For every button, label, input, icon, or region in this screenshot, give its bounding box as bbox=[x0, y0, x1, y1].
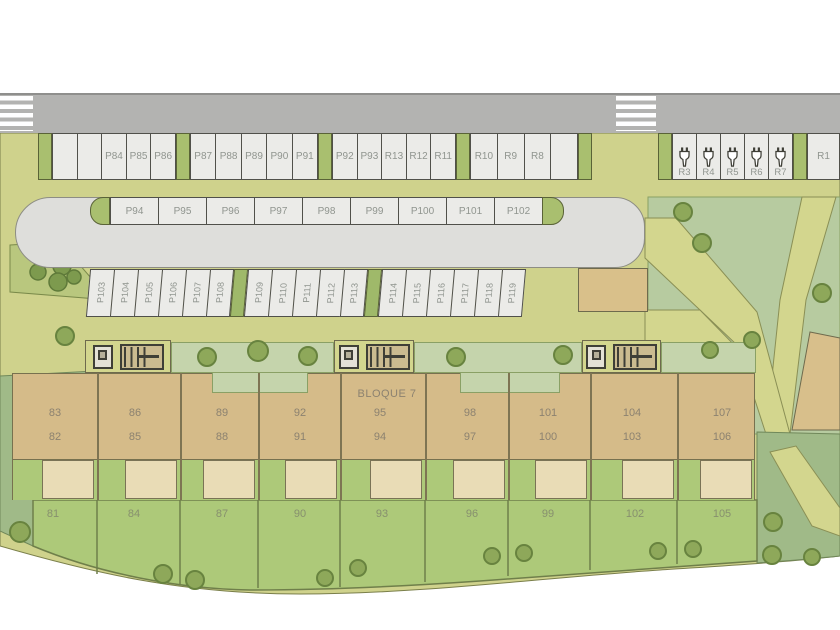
parking-stall bbox=[551, 134, 578, 179]
planting-cap bbox=[456, 133, 470, 180]
parking-stall bbox=[78, 134, 103, 179]
unit-divider bbox=[508, 373, 510, 500]
unit-number: 92 bbox=[294, 407, 306, 419]
parking-group: P84 P85 P86 bbox=[52, 133, 176, 180]
parking-group: P87 P88 P89 P90 P91 bbox=[190, 133, 318, 180]
parking-group: R10 R9 R8 bbox=[470, 133, 578, 180]
unit-number: 97 bbox=[464, 431, 476, 443]
unit-number: 86 bbox=[129, 407, 141, 419]
parking-stall: P102 bbox=[494, 197, 542, 225]
parking-stall: P86 bbox=[151, 134, 176, 179]
planting-cap bbox=[38, 133, 52, 180]
unit-number: 94 bbox=[374, 431, 386, 443]
tree-icon bbox=[812, 283, 832, 303]
stairs-icon bbox=[366, 344, 410, 370]
garden-number: 96 bbox=[466, 508, 478, 520]
patio bbox=[285, 460, 337, 499]
parking-stall: P92 bbox=[333, 134, 358, 179]
unit-number: 107 bbox=[713, 407, 731, 419]
patio bbox=[622, 460, 674, 499]
tree-icon bbox=[153, 564, 173, 584]
parking-stall: P98 bbox=[302, 197, 350, 225]
ev-parking-group: R3 R4 R5 R6 R7 bbox=[672, 133, 793, 180]
ev-plug-icon bbox=[702, 147, 715, 167]
unit-divider bbox=[425, 373, 427, 500]
tree-icon bbox=[673, 202, 693, 222]
road bbox=[0, 93, 840, 133]
tree-icon bbox=[649, 542, 667, 560]
unit-number: 82 bbox=[49, 431, 61, 443]
tree-icon bbox=[483, 547, 501, 565]
parking-stall: P87 bbox=[191, 134, 216, 179]
garden-number: 90 bbox=[294, 508, 306, 520]
ev-parking-stall: R7 bbox=[769, 134, 793, 179]
parking-stall: R1 bbox=[808, 134, 840, 179]
parking-stall: P85 bbox=[127, 134, 152, 179]
tree-icon bbox=[298, 346, 318, 366]
unit-number: 91 bbox=[294, 431, 306, 443]
tree-icon bbox=[553, 345, 573, 365]
crosswalk-icon bbox=[616, 96, 656, 131]
parking-stall: P119 bbox=[498, 269, 526, 317]
parking-stall: P91 bbox=[293, 134, 318, 179]
parking-stall: P90 bbox=[267, 134, 292, 179]
parking-lower-row: P103 P104 P105 P106 P107 P108 P109 P110 … bbox=[86, 269, 526, 317]
planting-cap bbox=[542, 197, 564, 225]
patio bbox=[125, 460, 177, 499]
parking-stall: P94 bbox=[110, 197, 158, 225]
planting-cap bbox=[658, 133, 672, 180]
tree-icon bbox=[701, 341, 719, 359]
patio bbox=[42, 460, 94, 499]
patio bbox=[453, 460, 505, 499]
tree-icon bbox=[684, 540, 702, 558]
stairs-icon bbox=[613, 344, 657, 370]
elevator-icon bbox=[339, 345, 359, 369]
elevator-icon bbox=[586, 345, 606, 369]
patio bbox=[700, 460, 752, 499]
planting-cap bbox=[90, 197, 110, 225]
parking-stall: P89 bbox=[242, 134, 267, 179]
garden-number: 99 bbox=[542, 508, 554, 520]
tree-icon bbox=[316, 569, 334, 587]
tree-icon bbox=[743, 331, 761, 349]
parking-stall: R12 bbox=[407, 134, 432, 179]
gardens bbox=[33, 500, 757, 590]
site-plan: P84 P85 P86 P87 P88 P89 P90 P91 P92 P93 … bbox=[0, 0, 840, 630]
tree-icon bbox=[692, 233, 712, 253]
stair-core bbox=[582, 340, 661, 373]
unit-number: 104 bbox=[623, 407, 641, 419]
garden-number: 81 bbox=[47, 508, 59, 520]
parking-stall: P88 bbox=[216, 134, 241, 179]
elevator-icon bbox=[93, 345, 113, 369]
ev-parking-stall: R4 bbox=[697, 134, 721, 179]
building-setback bbox=[212, 373, 308, 393]
unit-number: 103 bbox=[623, 431, 641, 443]
stairs-icon bbox=[120, 344, 164, 370]
unit-number: 88 bbox=[216, 431, 228, 443]
stall-label: R6 bbox=[750, 168, 762, 178]
parking-island-row: P94 P95 P96 P97 P98 P99 P100 P101 P102 bbox=[90, 197, 564, 225]
garden-number: 105 bbox=[713, 508, 731, 520]
parking-stall: P99 bbox=[350, 197, 398, 225]
garden-number: 87 bbox=[216, 508, 228, 520]
unit-number: 83 bbox=[49, 407, 61, 419]
ev-plug-icon bbox=[726, 147, 739, 167]
unit-number: 100 bbox=[539, 431, 557, 443]
parking-group: R1 bbox=[807, 133, 840, 180]
unit-number: 89 bbox=[216, 407, 228, 419]
stall-label: R7 bbox=[774, 168, 786, 178]
unit-divider bbox=[97, 373, 99, 500]
block-label: BLOQUE 7 bbox=[357, 388, 416, 400]
ev-parking-stall: R3 bbox=[673, 134, 697, 179]
parking-group: P92 P93 R13 R12 R11 bbox=[332, 133, 456, 180]
stall-label: R3 bbox=[678, 168, 690, 178]
parking-stall: P97 bbox=[254, 197, 302, 225]
tree-icon bbox=[349, 559, 367, 577]
garden-number: 102 bbox=[626, 508, 644, 520]
parking-stall: R9 bbox=[498, 134, 525, 179]
parking-stall: P101 bbox=[446, 197, 494, 225]
stall-label: R4 bbox=[702, 168, 714, 178]
unit-divider bbox=[258, 373, 260, 500]
parking-stall: P96 bbox=[206, 197, 254, 225]
unit-number: 106 bbox=[713, 431, 731, 443]
unit-number: 101 bbox=[539, 407, 557, 419]
unit-divider bbox=[180, 373, 182, 500]
planting-cap bbox=[793, 133, 807, 180]
unit-divider bbox=[340, 373, 342, 500]
planting-cap bbox=[578, 133, 592, 180]
tree-icon bbox=[763, 512, 783, 532]
utility-building bbox=[578, 268, 648, 312]
stair-core bbox=[85, 340, 171, 373]
tree-icon bbox=[247, 340, 269, 362]
parking-stall: P84 bbox=[102, 134, 127, 179]
parking-stall: R11 bbox=[431, 134, 456, 179]
ev-plug-icon bbox=[774, 147, 787, 167]
ev-parking-stall: R5 bbox=[721, 134, 745, 179]
parking-stall bbox=[53, 134, 78, 179]
patio bbox=[535, 460, 587, 499]
unit-number: 98 bbox=[464, 407, 476, 419]
ev-plug-icon bbox=[750, 147, 763, 167]
unit-number: 95 bbox=[374, 407, 386, 419]
parking-stall: R10 bbox=[471, 134, 498, 179]
parking-stall: P95 bbox=[158, 197, 206, 225]
ev-plug-icon bbox=[678, 147, 691, 167]
tree-icon bbox=[55, 326, 75, 346]
tree-icon bbox=[185, 570, 205, 590]
tree-icon bbox=[446, 347, 466, 367]
parking-stall: R13 bbox=[382, 134, 407, 179]
unit-divider bbox=[677, 373, 679, 500]
garden-number: 93 bbox=[376, 508, 388, 520]
planting-cap bbox=[318, 133, 332, 180]
parking-stall: P100 bbox=[398, 197, 446, 225]
patio bbox=[370, 460, 422, 499]
tree-icon bbox=[9, 521, 31, 543]
unit-divider bbox=[590, 373, 592, 500]
tree-icon bbox=[803, 548, 821, 566]
ev-parking-stall: R6 bbox=[745, 134, 769, 179]
garden-number: 84 bbox=[128, 508, 140, 520]
planting-cap bbox=[176, 133, 190, 180]
unit-number: 85 bbox=[129, 431, 141, 443]
stair-core bbox=[334, 340, 414, 373]
tree-icon bbox=[515, 544, 533, 562]
patio bbox=[203, 460, 255, 499]
parking-stall: R8 bbox=[525, 134, 552, 179]
stall-label: R5 bbox=[726, 168, 738, 178]
tree-icon bbox=[762, 545, 782, 565]
crosswalk-icon bbox=[0, 96, 33, 131]
parking-stall: P93 bbox=[358, 134, 383, 179]
tree-icon bbox=[197, 347, 217, 367]
building-setback bbox=[460, 373, 560, 393]
